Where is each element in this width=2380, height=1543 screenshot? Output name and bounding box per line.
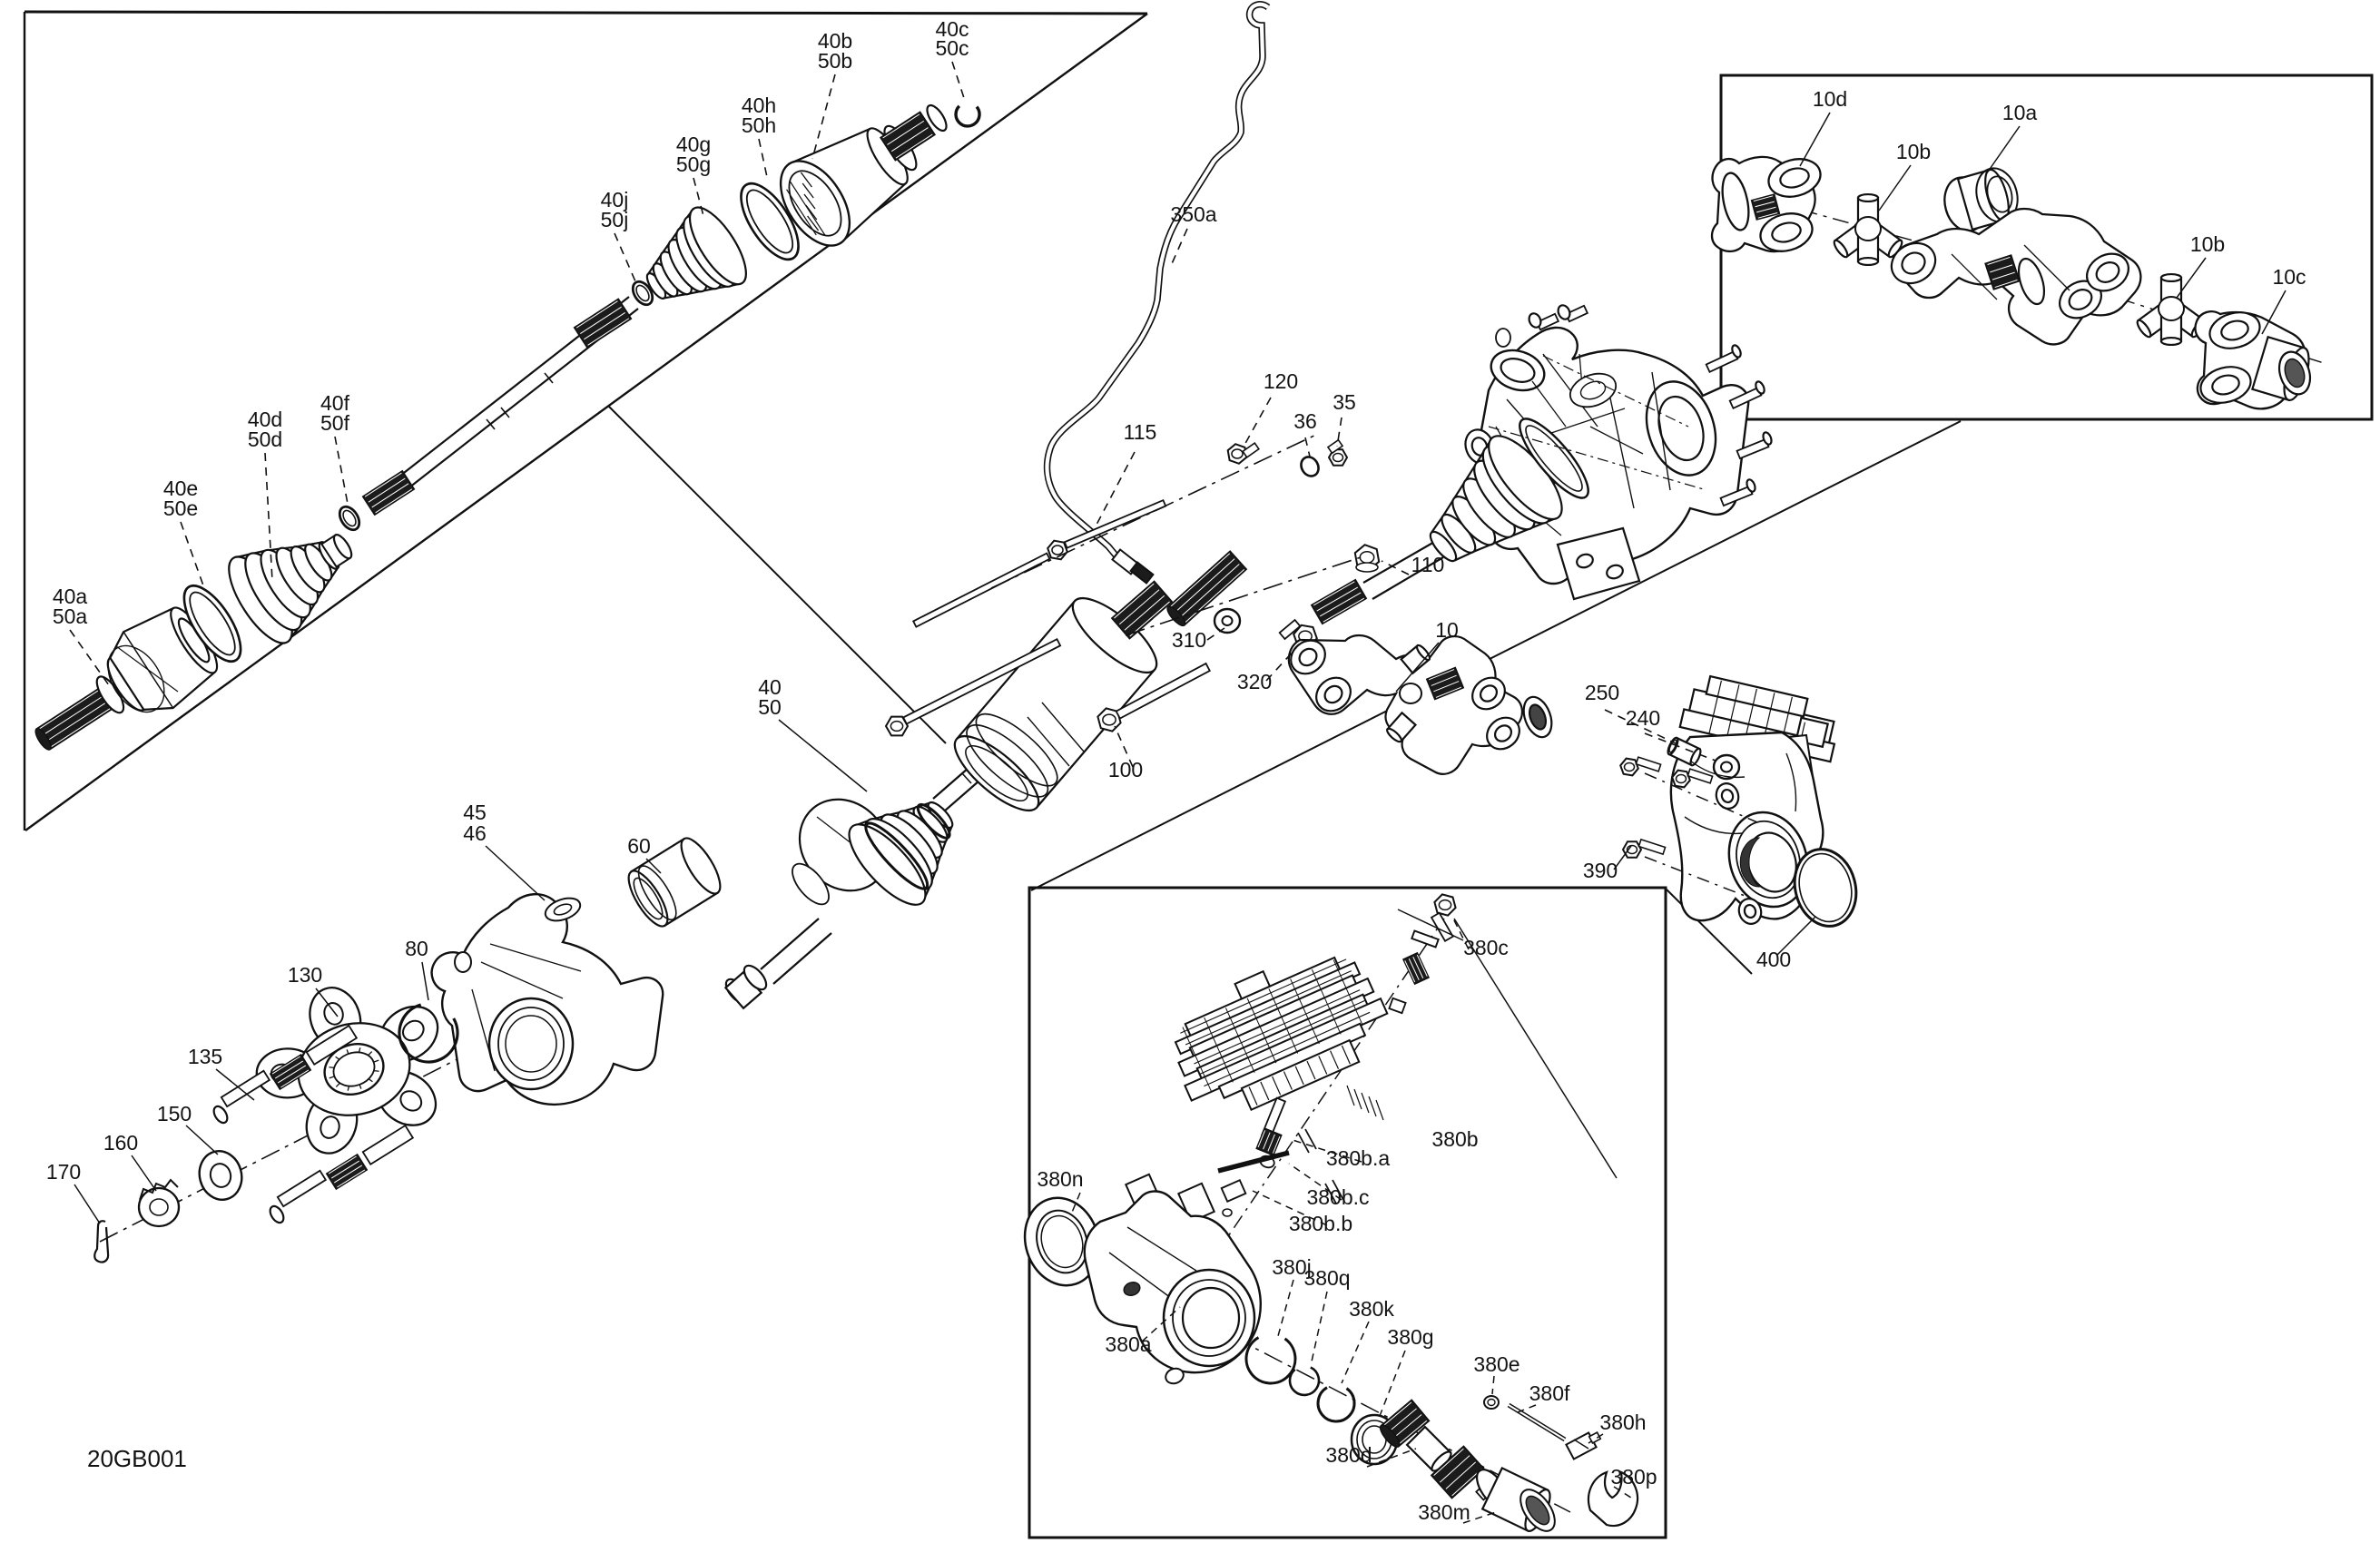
svg-text:10c: 10c (2272, 265, 2306, 289)
svg-text:50b: 50b (818, 49, 852, 73)
svg-text:120: 120 (1264, 369, 1298, 393)
svg-text:50f: 50f (320, 411, 350, 435)
svg-text:50d: 50d (248, 428, 282, 451)
svg-text:36: 36 (1293, 409, 1317, 433)
svg-text:240: 240 (1626, 706, 1660, 730)
svg-text:380n: 380n (1037, 1167, 1083, 1191)
svg-text:380b: 380b (1431, 1127, 1478, 1151)
svg-text:380q: 380q (1303, 1266, 1350, 1290)
svg-text:380p: 380p (1610, 1465, 1657, 1489)
svg-text:380h: 380h (1599, 1410, 1646, 1434)
svg-text:50h: 50h (742, 113, 776, 137)
svg-text:60: 60 (627, 834, 651, 858)
svg-text:115: 115 (1124, 420, 1157, 444)
svg-text:380e: 380e (1473, 1352, 1519, 1376)
svg-text:50c: 50c (935, 36, 969, 60)
svg-text:170: 170 (46, 1160, 81, 1184)
svg-text:10a: 10a (2002, 101, 2038, 124)
svg-text:110: 110 (1411, 553, 1445, 576)
svg-text:50a: 50a (53, 604, 88, 628)
svg-text:50j: 50j (601, 208, 629, 231)
svg-text:10b: 10b (2190, 232, 2225, 256)
svg-text:50: 50 (758, 695, 782, 719)
svg-text:380a: 380a (1105, 1332, 1151, 1356)
svg-text:380k: 380k (1349, 1297, 1394, 1321)
svg-text:380d: 380d (1325, 1443, 1372, 1467)
svg-text:250: 250 (1585, 681, 1619, 704)
svg-text:50g: 50g (676, 152, 711, 176)
svg-text:400: 400 (1756, 948, 1791, 971)
svg-text:10b: 10b (1896, 140, 1931, 163)
svg-text:380m: 380m (1418, 1500, 1470, 1524)
svg-text:150: 150 (157, 1102, 192, 1125)
svg-text:10: 10 (1435, 618, 1459, 642)
svg-text:135: 135 (188, 1045, 222, 1068)
svg-text:80: 80 (405, 937, 428, 960)
svg-text:350a: 350a (1170, 202, 1216, 226)
svg-text:380b.a: 380b.a (1326, 1146, 1391, 1170)
svg-text:390: 390 (1583, 859, 1618, 882)
svg-text:160: 160 (103, 1131, 138, 1155)
svg-text:10d: 10d (1813, 87, 1847, 111)
svg-text:380g: 380g (1387, 1325, 1433, 1349)
svg-text:20GB001: 20GB001 (87, 1445, 187, 1472)
svg-text:380b.c: 380b.c (1306, 1185, 1369, 1209)
svg-text:35: 35 (1333, 390, 1356, 414)
svg-text:320: 320 (1237, 670, 1272, 693)
svg-text:380b.b: 380b.b (1289, 1212, 1352, 1235)
svg-text:380f: 380f (1529, 1381, 1570, 1405)
svg-text:130: 130 (288, 963, 322, 987)
svg-text:310: 310 (1172, 628, 1206, 652)
svg-text:46: 46 (463, 821, 487, 845)
svg-text:380c: 380c (1463, 936, 1509, 959)
svg-text:50e: 50e (163, 496, 198, 520)
svg-text:100: 100 (1108, 758, 1143, 781)
